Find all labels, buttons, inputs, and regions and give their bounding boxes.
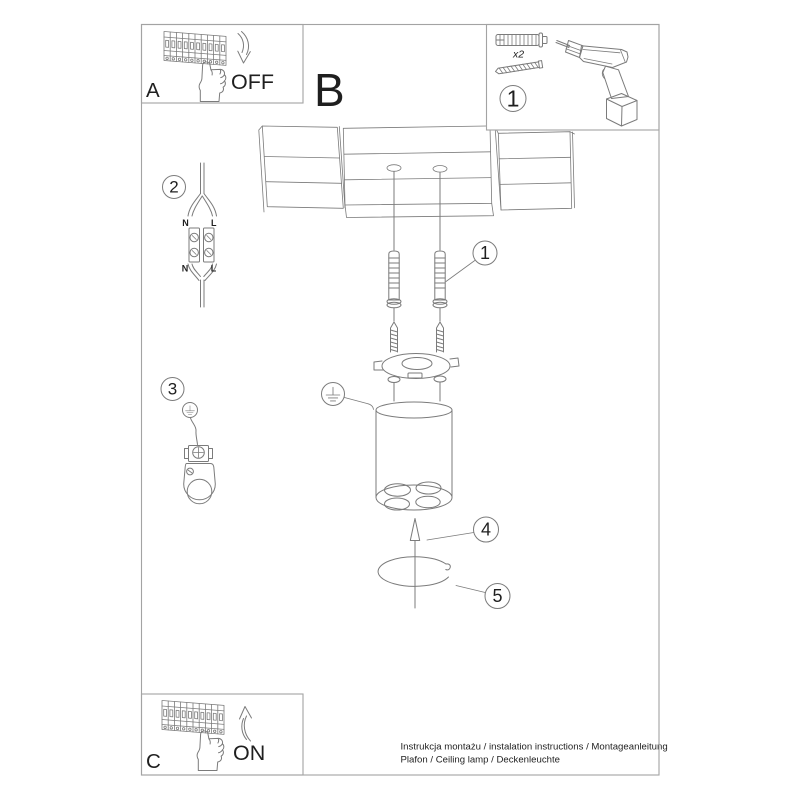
tools-number: 1 [507, 86, 520, 112]
wire-label-l-bottom: L [211, 264, 217, 274]
callout-step3-number: 3 [168, 380, 177, 399]
box-step-a: A OFF [142, 25, 304, 104]
instruction-sheet: 1 4 5 2 [0, 0, 800, 800]
breaker-panel-icon [164, 32, 226, 66]
footer-line1: Instrukcja montażu / instalation instruc… [401, 742, 668, 753]
wall-plug-icon [496, 33, 547, 47]
step-a-label: A [146, 79, 160, 102]
callout-step2-number: 2 [169, 178, 178, 197]
sheet-background [142, 25, 660, 776]
callout-step5-number: 5 [492, 586, 502, 606]
step-a-action: OFF [231, 70, 274, 94]
callout-step1-number: 1 [480, 243, 490, 263]
step-c-label: C [146, 750, 161, 773]
breaker-panel-icon [162, 701, 224, 735]
callout-step4-number: 4 [481, 520, 491, 540]
box-tools: x2 1 [487, 25, 660, 131]
step-c-action: ON [233, 741, 265, 765]
wire-label-l-top: L [211, 218, 217, 228]
wire-label-n-top: N [182, 218, 189, 228]
wire-label-n-bottom: N [182, 264, 189, 274]
step-b-label: B [314, 64, 345, 116]
quantity-label: x2 [512, 49, 524, 61]
box-step-c: C ON [142, 694, 304, 775]
tools-number-callout: 1 [500, 86, 526, 112]
footer-line2: Plafon / Ceiling lamp / Deckenleuchte [401, 755, 560, 766]
